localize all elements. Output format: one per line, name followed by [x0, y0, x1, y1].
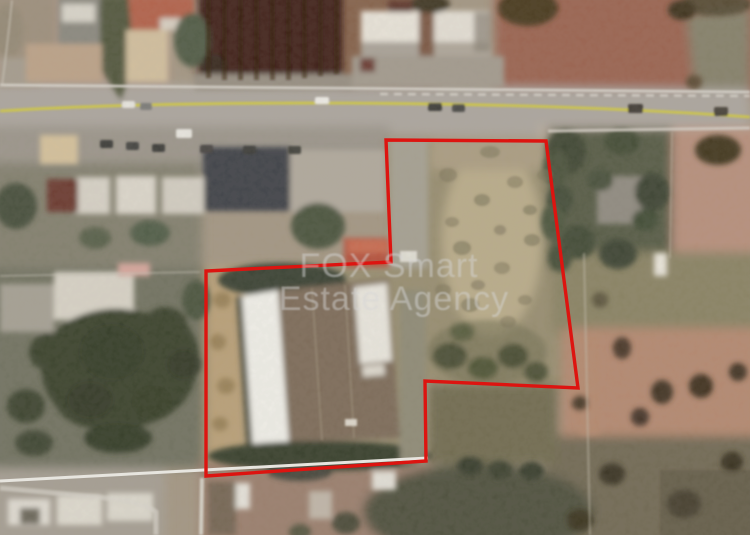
svg-text:Estate Agency: Estate Agency: [279, 280, 509, 318]
